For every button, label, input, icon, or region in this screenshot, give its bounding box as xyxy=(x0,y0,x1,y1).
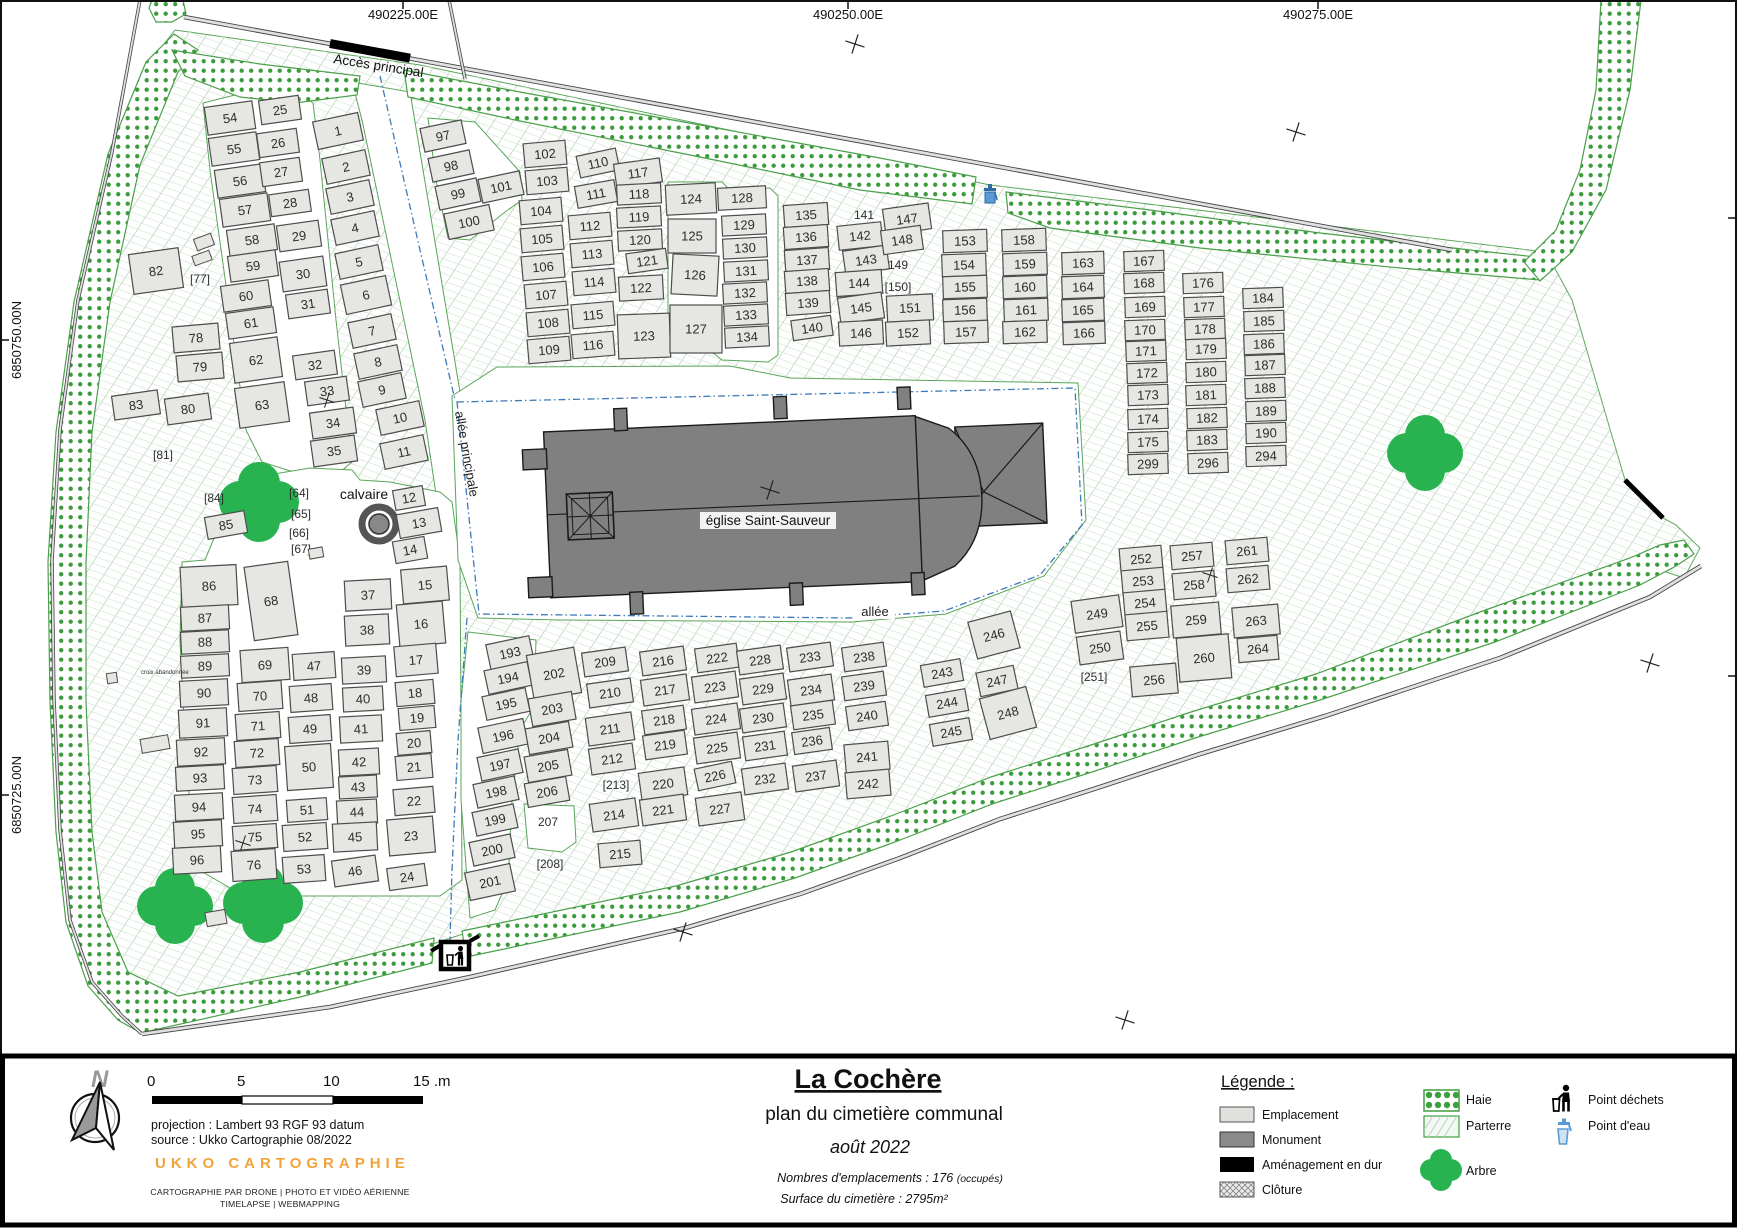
svg-text:217: 217 xyxy=(653,681,677,699)
svg-text:5: 5 xyxy=(237,1073,245,1090)
svg-text:174: 174 xyxy=(1137,411,1159,427)
svg-text:13: 13 xyxy=(411,514,428,531)
svg-text:50: 50 xyxy=(301,759,316,775)
svg-text:168: 168 xyxy=(1133,275,1155,291)
svg-text:115: 115 xyxy=(582,307,604,324)
svg-text:86: 86 xyxy=(201,578,216,594)
svg-text:263: 263 xyxy=(1245,613,1268,630)
svg-text:78: 78 xyxy=(188,330,204,346)
svg-text:149: 149 xyxy=(888,258,908,272)
svg-text:184: 184 xyxy=(1252,290,1274,306)
svg-text:89: 89 xyxy=(197,658,212,674)
svg-text:126: 126 xyxy=(684,267,706,283)
svg-text:139: 139 xyxy=(797,295,820,311)
svg-text:170: 170 xyxy=(1134,322,1156,338)
svg-text:49: 49 xyxy=(302,721,317,737)
svg-text:113: 113 xyxy=(581,246,603,263)
svg-text:171: 171 xyxy=(1135,343,1157,359)
svg-text:[150]: [150] xyxy=(885,280,912,294)
svg-text:117: 117 xyxy=(627,164,650,182)
svg-text:88: 88 xyxy=(197,634,212,650)
svg-text:114: 114 xyxy=(583,274,605,291)
svg-text:96: 96 xyxy=(189,852,204,868)
svg-text:76: 76 xyxy=(246,857,261,873)
svg-text:242: 242 xyxy=(857,776,880,793)
svg-text:25: 25 xyxy=(272,102,288,119)
svg-text:91: 91 xyxy=(195,715,210,731)
svg-text:20: 20 xyxy=(406,735,422,751)
svg-text:214: 214 xyxy=(602,806,626,824)
svg-text:105: 105 xyxy=(531,231,554,248)
svg-text:16: 16 xyxy=(413,616,429,632)
svg-text:70: 70 xyxy=(252,688,267,704)
svg-text:51: 51 xyxy=(299,802,314,818)
svg-text:145: 145 xyxy=(849,299,873,317)
svg-text:107: 107 xyxy=(535,287,558,304)
svg-text:112: 112 xyxy=(579,218,601,235)
svg-text:490225.00E: 490225.00E xyxy=(368,7,438,22)
svg-text:176: 176 xyxy=(1192,275,1214,291)
svg-text:209: 209 xyxy=(593,653,617,671)
svg-text:224: 224 xyxy=(704,710,728,728)
svg-text:40: 40 xyxy=(355,691,370,707)
svg-text:32: 32 xyxy=(307,357,323,374)
svg-text:490250.00E: 490250.00E xyxy=(813,7,883,22)
svg-text:257: 257 xyxy=(1181,548,1204,565)
svg-text:254: 254 xyxy=(1134,595,1157,612)
svg-text:239: 239 xyxy=(852,677,876,695)
svg-text:église Saint-Sauveur: église Saint-Sauveur xyxy=(706,513,831,528)
svg-text:Surface du cimetière : 2795m²: Surface du cimetière : 2795m² xyxy=(780,1192,948,1206)
svg-text:161: 161 xyxy=(1015,302,1037,318)
svg-text:17: 17 xyxy=(408,652,424,668)
svg-text:30: 30 xyxy=(295,266,311,283)
svg-text:219: 219 xyxy=(653,736,677,754)
svg-text:97: 97 xyxy=(434,127,451,145)
svg-text:6850725.00N: 6850725.00N xyxy=(9,756,24,834)
svg-text:69: 69 xyxy=(257,657,272,673)
svg-text:136: 136 xyxy=(795,229,818,245)
svg-text:264: 264 xyxy=(1247,641,1270,658)
svg-text:130: 130 xyxy=(734,240,756,256)
svg-text:74: 74 xyxy=(247,801,262,817)
svg-text:177: 177 xyxy=(1193,299,1215,315)
svg-text:22: 22 xyxy=(406,793,422,809)
svg-text:63: 63 xyxy=(254,397,270,414)
svg-text:103: 103 xyxy=(536,173,559,190)
svg-text:138: 138 xyxy=(796,273,819,289)
svg-text:61: 61 xyxy=(243,315,259,332)
svg-text:[66]: [66] xyxy=(289,526,309,540)
svg-text:94: 94 xyxy=(191,799,206,815)
svg-text:146: 146 xyxy=(850,325,872,341)
svg-text:225: 225 xyxy=(705,739,729,757)
svg-text:156: 156 xyxy=(954,302,976,318)
svg-text:73: 73 xyxy=(247,772,262,788)
svg-text:122: 122 xyxy=(630,280,652,296)
svg-text:10: 10 xyxy=(391,409,408,427)
svg-text:185: 185 xyxy=(1253,313,1275,329)
svg-text:120: 120 xyxy=(629,232,651,248)
svg-text:26: 26 xyxy=(270,135,286,152)
svg-text:230: 230 xyxy=(751,709,775,727)
svg-text:142: 142 xyxy=(848,227,871,244)
svg-text:Nombres d'emplacements : 176 (: Nombres d'emplacements : 176 (occupés) xyxy=(777,1171,1003,1185)
svg-text:104: 104 xyxy=(530,203,553,220)
svg-text:179: 179 xyxy=(1195,341,1217,357)
svg-text:62: 62 xyxy=(248,352,264,369)
svg-text:[251]: [251] xyxy=(1081,670,1108,684)
svg-text:[81]: [81] xyxy=(153,448,173,462)
svg-text:178: 178 xyxy=(1194,321,1216,337)
svg-text:218: 218 xyxy=(652,711,676,729)
svg-text:projection : Lambert 93 RGF 93: projection : Lambert 93 RGF 93 datum xyxy=(151,1118,364,1132)
svg-text:222: 222 xyxy=(705,649,729,667)
svg-text:calvaire: calvaire xyxy=(340,486,388,502)
svg-text:135: 135 xyxy=(795,207,818,223)
svg-text:250: 250 xyxy=(1088,639,1112,657)
svg-text:183: 183 xyxy=(1196,432,1218,448)
svg-text:212: 212 xyxy=(600,750,624,768)
svg-text:83: 83 xyxy=(128,397,144,414)
svg-text:131: 131 xyxy=(735,263,757,279)
svg-text:TIMELAPSE | WEBMAPPING: TIMELAPSE | WEBMAPPING xyxy=(220,1199,340,1209)
svg-text:236: 236 xyxy=(800,732,824,750)
svg-text:24: 24 xyxy=(399,869,415,886)
svg-text:[213]: [213] xyxy=(603,778,630,792)
svg-text:57: 57 xyxy=(237,202,253,219)
svg-text:Aménagement en dur: Aménagement en dur xyxy=(1262,1158,1382,1172)
svg-text:152: 152 xyxy=(897,325,919,341)
svg-text:141: 141 xyxy=(854,208,874,222)
svg-text:158: 158 xyxy=(1013,232,1035,248)
svg-text:[64]: [64] xyxy=(289,486,309,500)
svg-text:210: 210 xyxy=(598,684,622,702)
svg-text:46: 46 xyxy=(347,863,363,880)
svg-text:55: 55 xyxy=(226,141,242,158)
svg-text:90: 90 xyxy=(196,685,211,701)
svg-text:127: 127 xyxy=(685,322,707,337)
svg-text:31: 31 xyxy=(300,296,316,313)
svg-text:233: 233 xyxy=(798,648,822,666)
svg-text:215: 215 xyxy=(609,846,632,863)
svg-text:Monument: Monument xyxy=(1262,1133,1322,1147)
svg-text:262: 262 xyxy=(1237,571,1260,588)
svg-text:253: 253 xyxy=(1132,573,1155,590)
svg-text:157: 157 xyxy=(955,324,977,340)
svg-text:207: 207 xyxy=(538,815,558,829)
svg-text:188: 188 xyxy=(1254,380,1276,396)
svg-text:44: 44 xyxy=(349,804,364,820)
svg-text:99: 99 xyxy=(449,185,466,203)
svg-text:14: 14 xyxy=(402,541,419,558)
svg-text:232: 232 xyxy=(753,770,777,788)
svg-text:52: 52 xyxy=(297,829,312,845)
svg-text:87: 87 xyxy=(197,610,212,626)
svg-text:34: 34 xyxy=(325,415,341,432)
svg-text:68: 68 xyxy=(263,593,279,610)
svg-text:Point d'eau: Point d'eau xyxy=(1588,1119,1650,1133)
svg-text:162: 162 xyxy=(1014,324,1036,340)
svg-text:56: 56 xyxy=(232,173,248,190)
svg-text:165: 165 xyxy=(1072,302,1094,318)
svg-text:85: 85 xyxy=(218,516,235,533)
svg-text:La Cochère: La Cochère xyxy=(794,1064,941,1094)
svg-text:21: 21 xyxy=(406,759,422,775)
svg-text:27: 27 xyxy=(273,164,289,181)
svg-text:151: 151 xyxy=(899,300,921,316)
svg-text:166: 166 xyxy=(1073,325,1095,341)
svg-text:227: 227 xyxy=(708,800,732,818)
svg-text:croix abandonnée: croix abandonnée xyxy=(141,670,189,676)
svg-text:255: 255 xyxy=(1136,618,1159,635)
svg-text:231: 231 xyxy=(753,737,777,755)
svg-text:155: 155 xyxy=(954,279,976,295)
svg-text:187: 187 xyxy=(1254,357,1276,373)
svg-text:137: 137 xyxy=(796,252,819,268)
svg-text:189: 189 xyxy=(1255,403,1277,419)
svg-text:140: 140 xyxy=(800,319,824,337)
svg-text:228: 228 xyxy=(748,651,772,669)
svg-text:45: 45 xyxy=(347,829,362,845)
svg-text:109: 109 xyxy=(538,342,561,359)
svg-text:Clôture: Clôture xyxy=(1262,1183,1302,1197)
svg-text:37: 37 xyxy=(360,587,375,603)
svg-text:23: 23 xyxy=(403,828,419,844)
svg-text:95: 95 xyxy=(190,826,205,842)
svg-text:33: 33 xyxy=(319,383,335,400)
svg-text:211: 211 xyxy=(599,720,622,738)
svg-text:123: 123 xyxy=(633,328,655,344)
svg-text:[208]: [208] xyxy=(537,857,564,871)
svg-text:181: 181 xyxy=(1195,387,1217,403)
svg-text:116: 116 xyxy=(582,337,604,354)
svg-text:53: 53 xyxy=(296,861,311,877)
svg-text:UKKO CARTOGRAPHIE: UKKO CARTOGRAPHIE xyxy=(155,1155,410,1172)
svg-text:175: 175 xyxy=(1137,434,1159,450)
svg-text:82: 82 xyxy=(148,263,164,280)
svg-text:41: 41 xyxy=(353,721,368,737)
svg-text:190: 190 xyxy=(1255,425,1277,441)
svg-text:169: 169 xyxy=(1134,299,1156,315)
svg-text:72: 72 xyxy=(249,745,264,761)
svg-text:240: 240 xyxy=(855,707,879,725)
svg-text:132: 132 xyxy=(734,285,756,301)
svg-text:186: 186 xyxy=(1253,336,1275,352)
svg-text:Emplacement: Emplacement xyxy=(1262,1108,1339,1122)
svg-text:106: 106 xyxy=(532,259,555,276)
svg-text:235: 235 xyxy=(801,706,825,724)
svg-text:134: 134 xyxy=(736,329,758,345)
svg-text:144: 144 xyxy=(848,275,871,291)
svg-text:[65]: [65] xyxy=(291,507,311,521)
svg-text:153: 153 xyxy=(954,233,976,249)
svg-text:129: 129 xyxy=(733,217,755,233)
svg-text:163: 163 xyxy=(1072,255,1094,271)
svg-text:216: 216 xyxy=(651,652,675,670)
svg-text:260: 260 xyxy=(1193,650,1216,667)
svg-text:182: 182 xyxy=(1196,410,1218,426)
svg-text:238: 238 xyxy=(852,648,876,666)
svg-text:75: 75 xyxy=(247,829,262,845)
svg-text:118: 118 xyxy=(628,186,649,202)
svg-text:12: 12 xyxy=(401,489,418,506)
svg-text:234: 234 xyxy=(799,681,823,699)
svg-text:261: 261 xyxy=(1236,543,1259,560)
svg-text:172: 172 xyxy=(1136,365,1158,381)
svg-text:159: 159 xyxy=(1014,256,1036,272)
svg-text:août 2022: août 2022 xyxy=(830,1137,910,1157)
svg-text:35: 35 xyxy=(326,443,342,460)
svg-text:0: 0 xyxy=(147,1073,155,1090)
svg-text:19: 19 xyxy=(409,710,425,726)
svg-text:108: 108 xyxy=(537,315,560,332)
svg-text:29: 29 xyxy=(291,228,307,245)
svg-text:258: 258 xyxy=(1183,577,1206,594)
svg-text:Arbre: Arbre xyxy=(1466,1164,1497,1178)
svg-text:173: 173 xyxy=(1137,387,1159,403)
svg-text:160: 160 xyxy=(1014,279,1036,295)
svg-text:252: 252 xyxy=(1130,551,1153,568)
svg-text:128: 128 xyxy=(731,190,753,206)
svg-text:220: 220 xyxy=(651,775,675,793)
svg-text:Haie: Haie xyxy=(1466,1093,1492,1107)
svg-text:Légende :: Légende : xyxy=(1221,1073,1294,1091)
svg-text:79: 79 xyxy=(192,359,208,375)
svg-text:92: 92 xyxy=(193,744,208,760)
svg-text:148: 148 xyxy=(890,231,914,249)
svg-text:249: 249 xyxy=(1085,605,1109,623)
svg-text:43: 43 xyxy=(350,779,365,795)
svg-text:Parterre: Parterre xyxy=(1466,1119,1511,1133)
svg-text:18: 18 xyxy=(407,685,423,701)
svg-text:229: 229 xyxy=(751,680,775,698)
svg-text:47: 47 xyxy=(306,658,321,674)
svg-text:10: 10 xyxy=(323,1073,340,1090)
svg-text:241: 241 xyxy=(856,749,879,766)
svg-text:147: 147 xyxy=(895,210,919,228)
svg-text:119: 119 xyxy=(628,209,649,225)
svg-text:133: 133 xyxy=(735,307,757,323)
svg-text:143: 143 xyxy=(854,251,878,269)
svg-text:180: 180 xyxy=(1195,364,1217,380)
svg-text:98: 98 xyxy=(442,157,459,175)
svg-text:38: 38 xyxy=(359,622,374,638)
svg-text:296: 296 xyxy=(1197,455,1219,471)
svg-text:[84]: [84] xyxy=(204,491,224,505)
svg-text:CARTOGRAPHIE PAR DRONE | PHO: CARTOGRAPHIE PAR DRONE | PHOTO ET VIDÈO … xyxy=(150,1187,409,1197)
svg-text:294: 294 xyxy=(1255,448,1277,464)
svg-text:54: 54 xyxy=(222,110,238,127)
svg-text:[77]: [77] xyxy=(190,272,210,286)
svg-text:121: 121 xyxy=(635,252,659,270)
svg-text:237: 237 xyxy=(804,767,828,785)
svg-text:256: 256 xyxy=(1143,672,1166,689)
svg-text:221: 221 xyxy=(651,801,675,819)
svg-text:125: 125 xyxy=(681,229,703,244)
svg-text:102: 102 xyxy=(534,146,557,163)
svg-text:6850750.00N: 6850750.00N xyxy=(9,301,24,379)
svg-text:48: 48 xyxy=(303,690,318,706)
svg-text:Point déchets: Point déchets xyxy=(1588,1093,1664,1107)
svg-text:167: 167 xyxy=(1133,253,1155,269)
svg-text:164: 164 xyxy=(1072,279,1094,295)
svg-text:59: 59 xyxy=(245,258,261,275)
svg-text:28: 28 xyxy=(282,195,298,212)
svg-text:93: 93 xyxy=(192,770,207,786)
svg-text:299: 299 xyxy=(1137,456,1159,472)
svg-text:42: 42 xyxy=(351,754,366,770)
svg-text:plan du cimetière communal: plan du cimetière communal xyxy=(765,1104,1003,1125)
svg-text:80: 80 xyxy=(180,401,196,418)
svg-text:39: 39 xyxy=(356,662,371,678)
svg-text:58: 58 xyxy=(244,232,260,249)
svg-text:124: 124 xyxy=(680,191,702,207)
svg-text:71: 71 xyxy=(250,718,265,734)
svg-text:15: 15 xyxy=(417,577,433,593)
svg-text:60: 60 xyxy=(238,288,254,305)
svg-text:490275.00E: 490275.00E xyxy=(1283,7,1353,22)
svg-text:223: 223 xyxy=(703,678,727,696)
svg-text:154: 154 xyxy=(953,257,975,273)
svg-text:source : Ukko Cartographie 08/: source : Ukko Cartographie 08/2022 xyxy=(151,1133,352,1147)
svg-text:259: 259 xyxy=(1185,612,1208,629)
svg-text:allée: allée xyxy=(861,604,888,619)
svg-text:15 .m: 15 .m xyxy=(413,1073,451,1090)
